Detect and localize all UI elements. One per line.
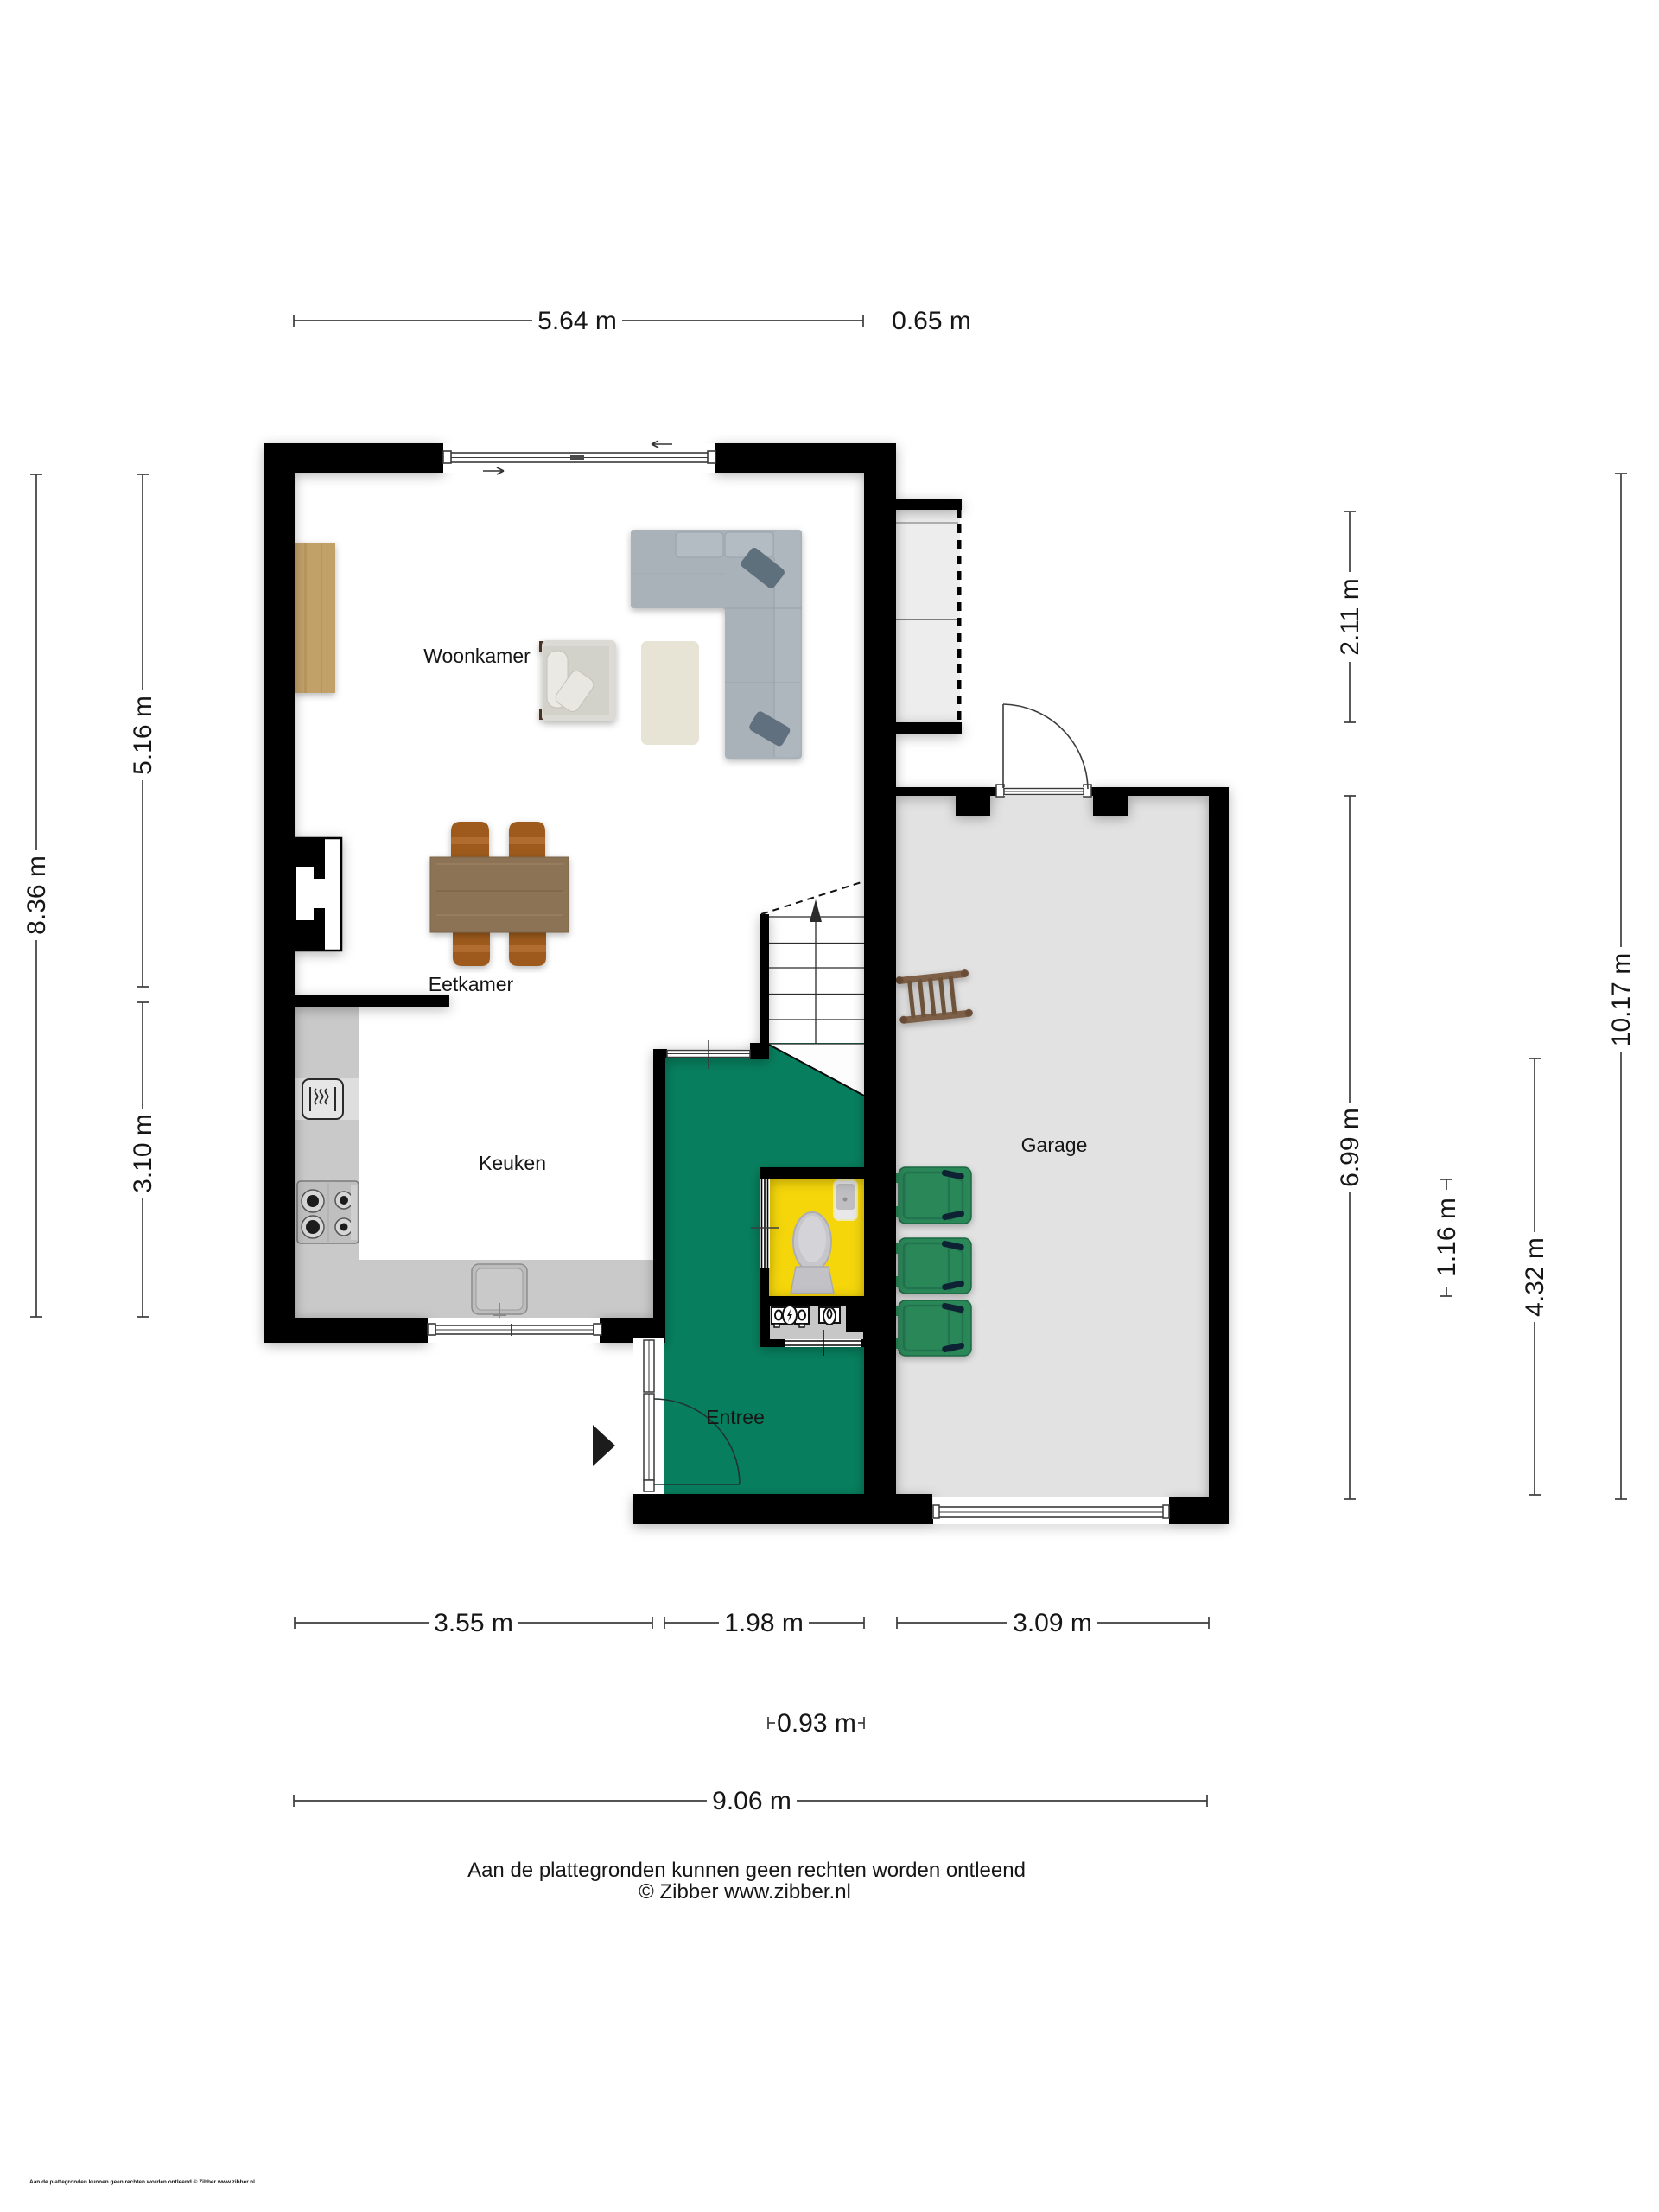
svg-text:Eetkamer: Eetkamer xyxy=(429,973,514,995)
svg-text:0.93 m: 0.93 m xyxy=(777,1709,856,1738)
svg-text:Woonkamer: Woonkamer xyxy=(423,645,531,667)
svg-text:10.17 m: 10.17 m xyxy=(1607,953,1636,1046)
svg-text:Aan de plattegronden kunnen ge: Aan de plattegronden kunnen geen rechten… xyxy=(467,1859,1026,1882)
svg-text:0.65 m: 0.65 m xyxy=(892,307,971,335)
svg-text:2.11 m: 2.11 m xyxy=(1336,578,1364,656)
svg-text:9.06 m: 9.06 m xyxy=(712,1787,791,1815)
svg-text:5.16 m: 5.16 m xyxy=(129,696,157,775)
svg-text:1.16 m: 1.16 m xyxy=(1433,1198,1461,1277)
svg-text:5.64 m: 5.64 m xyxy=(537,307,617,335)
svg-text:4.32 m: 4.32 m xyxy=(1521,1237,1549,1317)
svg-text:Aan de plattegronden kunnen ge: Aan de plattegronden kunnen geen rechten… xyxy=(29,2178,255,2185)
svg-text:3.55 m: 3.55 m xyxy=(434,1609,513,1637)
svg-text:6.99 m: 6.99 m xyxy=(1336,1108,1364,1187)
svg-text:3.09 m: 3.09 m xyxy=(1013,1609,1092,1637)
svg-text:© Zibber www.zibber.nl: © Zibber www.zibber.nl xyxy=(639,1880,851,1904)
svg-text:Entree: Entree xyxy=(706,1406,765,1428)
svg-text:8.36 m: 8.36 m xyxy=(22,855,51,935)
svg-text:Garage: Garage xyxy=(1021,1134,1088,1156)
svg-text:Keuken: Keuken xyxy=(479,1152,546,1174)
svg-text:1.98 m: 1.98 m xyxy=(724,1609,804,1637)
svg-text:3.10 m: 3.10 m xyxy=(129,1114,157,1193)
